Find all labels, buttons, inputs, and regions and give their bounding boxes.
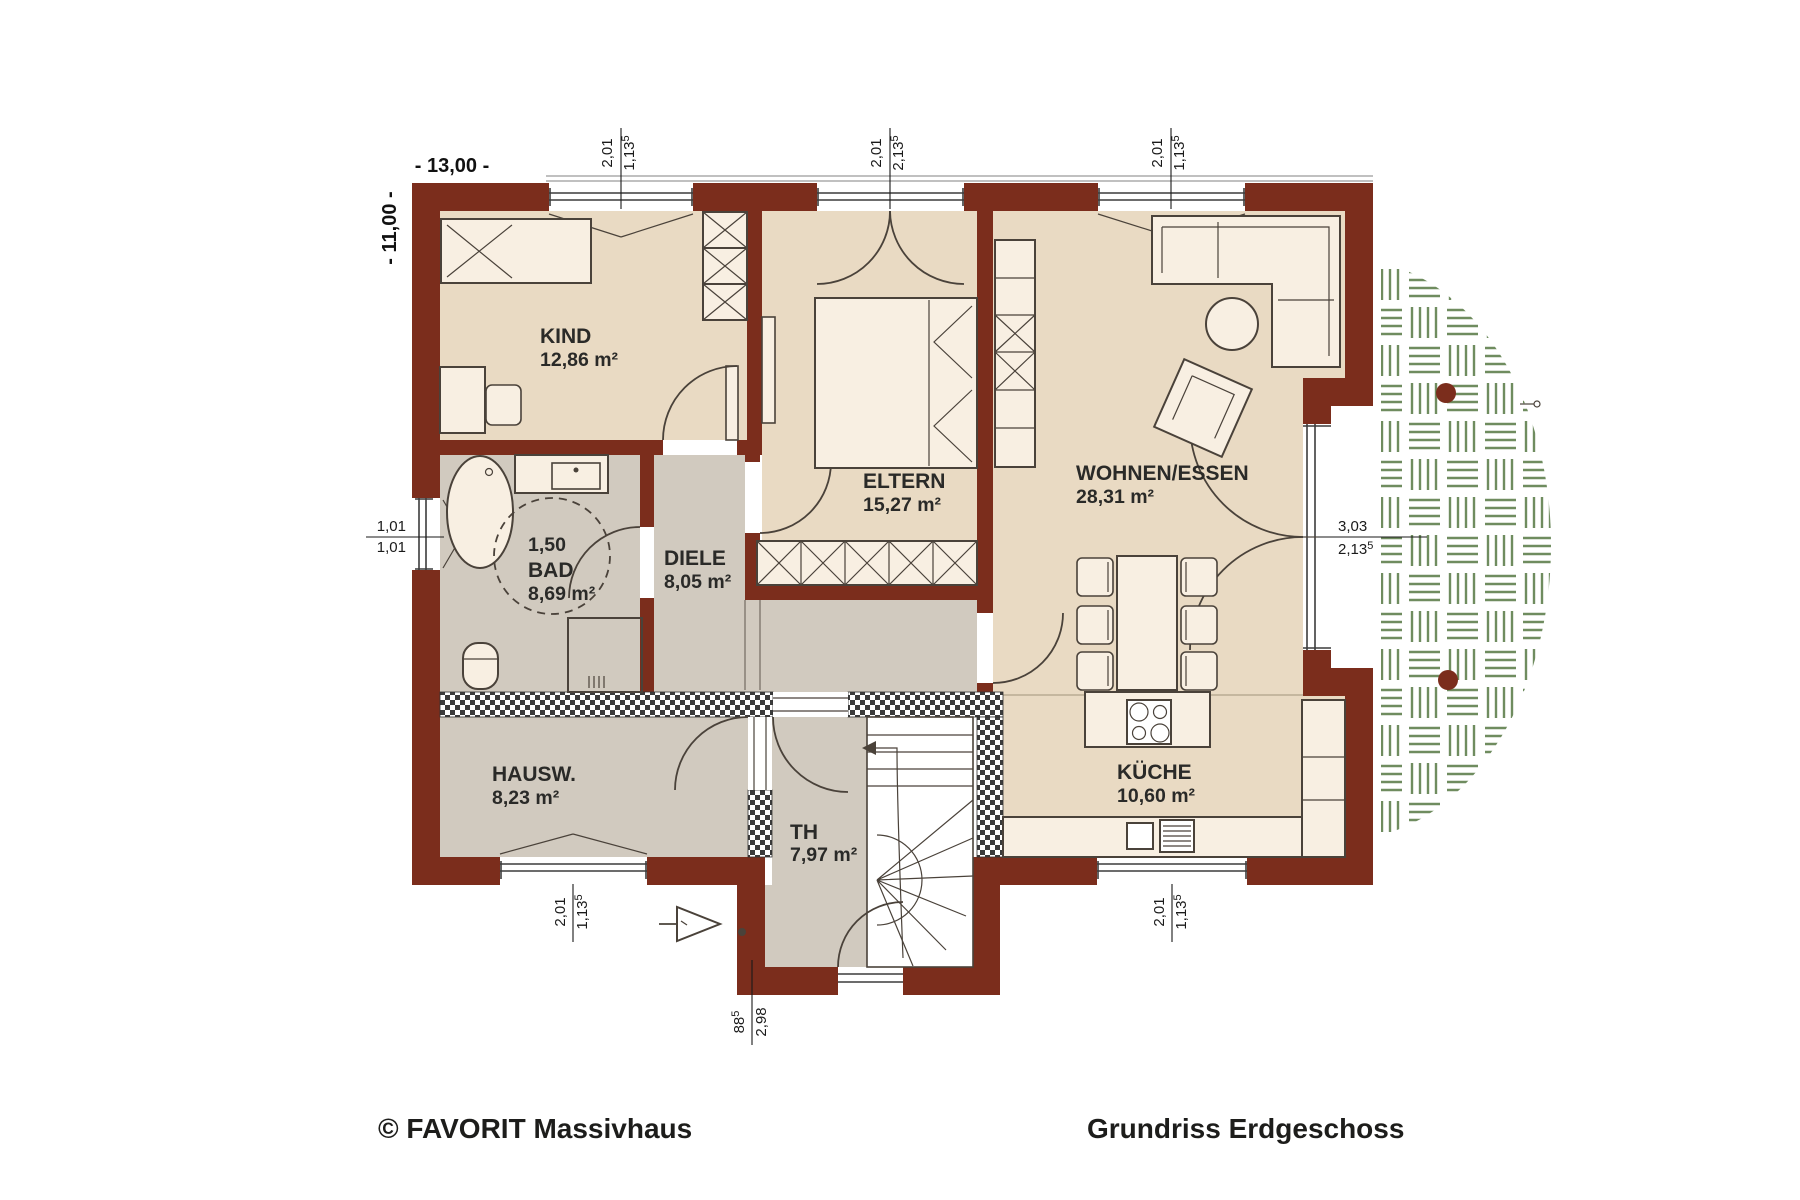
kind-door-leaf	[726, 366, 738, 440]
kueche-window-dim-w: 2,01	[1151, 897, 1168, 926]
toilet	[463, 643, 498, 689]
eaves-lines	[546, 176, 1373, 181]
eltern-window-dim-w: 2,01	[868, 138, 885, 167]
room-kueche-area: 10,60 m²	[1117, 785, 1196, 807]
room-th-label: TH	[790, 821, 818, 844]
bathtub	[447, 456, 513, 568]
room-wohnen-area: 28,31 m²	[1076, 486, 1155, 508]
room-kind-label: KIND	[540, 325, 591, 348]
eltern-window-dim-h: 2,135	[889, 135, 907, 170]
room-bad-area: 8,69 m²	[528, 583, 596, 605]
overall-width-dim: - 13,00 -	[415, 155, 489, 177]
shelf-unit	[995, 240, 1035, 467]
kueche-window-dim-h: 1,135	[1172, 894, 1190, 929]
kind-bed	[441, 219, 591, 283]
eltern-wardrobe	[757, 541, 977, 585]
terrace-door-dim-w: 3,03	[1338, 518, 1367, 535]
room-hausw-area: 8,23 m²	[492, 787, 560, 809]
room-bad-label: BAD	[528, 559, 574, 582]
kitchen-counter-right	[1302, 700, 1345, 857]
tree-icon	[1438, 670, 1458, 690]
kitchen-counter-bottom	[1003, 817, 1305, 857]
terrace-paving	[1381, 262, 1551, 833]
side-table	[1206, 298, 1258, 350]
stair-floor	[867, 717, 973, 967]
entry-door-dim-h: 2,98	[753, 1007, 770, 1036]
kitchen-island	[1085, 692, 1210, 747]
eltern-radiator	[762, 317, 775, 423]
kind-window-dim-h: 1,135	[620, 135, 638, 170]
eltern-bed	[815, 298, 977, 468]
wohnen-window-dim-w: 2,01	[1149, 138, 1166, 167]
corridor-floor	[745, 598, 977, 692]
overall-depth-dim: - 11,00 -	[379, 191, 401, 264]
bad-window-dim-h: 1,01	[377, 539, 406, 556]
copyright-text: © FAVORIT Massivhaus	[378, 1113, 692, 1144]
entry-arrow-icon	[659, 907, 720, 941]
room-bad-circle: 1,50	[528, 534, 566, 556]
room-eltern-area: 15,27 m²	[863, 494, 942, 516]
room-th-area: 7,97 m²	[790, 844, 858, 866]
dining-set	[1077, 556, 1217, 690]
kind-wardrobe	[703, 212, 747, 320]
footer: © FAVORIT Massivhaus Grundriss Erdgescho…	[378, 1113, 1404, 1144]
room-diele-area: 8,05 m²	[664, 571, 732, 593]
kind-window-dim-w: 2,01	[599, 138, 616, 167]
room-kueche-label: KÜCHE	[1117, 761, 1192, 784]
floor-plan-page: KIND 12,86 m² ELTERN 15,27 m² WOHNEN/ESS…	[0, 0, 1800, 1200]
hausw-window-dim-h: 1,135	[573, 894, 591, 929]
entry-door-dim-w: 885	[730, 1011, 748, 1034]
bad-window-dim-w: 1,01	[377, 518, 406, 535]
floor-plan-drawing: KIND 12,86 m² ELTERN 15,27 m² WOHNEN/ESS…	[0, 0, 1800, 1200]
room-eltern-label: ELTERN	[863, 470, 945, 493]
room-hausw-floor	[440, 717, 748, 857]
plan-title: Grundriss Erdgeschoss	[1087, 1113, 1404, 1144]
tree-icon	[1436, 383, 1456, 403]
terrace	[1381, 262, 1551, 833]
wohnen-window-dim-h: 1,135	[1170, 135, 1188, 170]
hausw-window-dim-w: 2,01	[552, 897, 569, 926]
room-wohnen-label: WOHNEN/ESSEN	[1076, 462, 1249, 485]
room-kind-area: 12,86 m²	[540, 349, 619, 371]
room-diele-label: DIELE	[664, 547, 726, 570]
washbasin	[515, 455, 608, 493]
room-hausw-label: HAUSW.	[492, 763, 576, 786]
